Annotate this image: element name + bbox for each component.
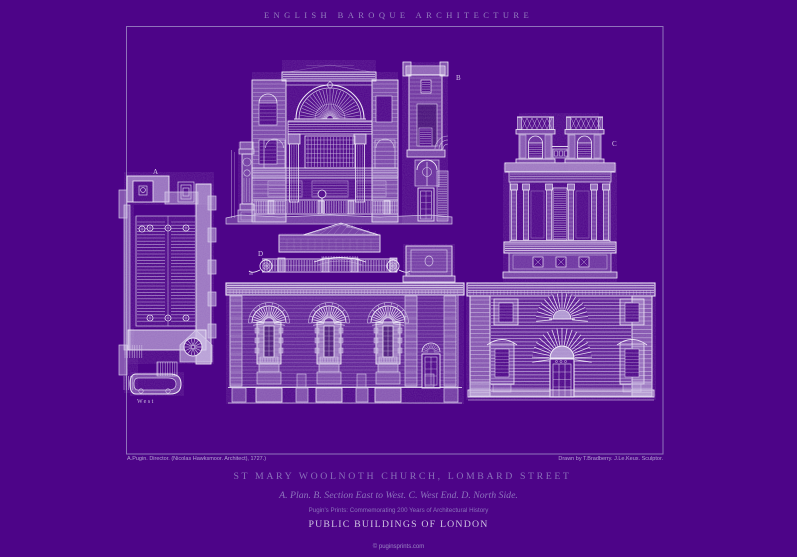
svg-text:West: West bbox=[137, 399, 155, 405]
svg-text:B: B bbox=[456, 74, 461, 82]
svg-text:C: C bbox=[612, 140, 617, 148]
svg-text:D: D bbox=[258, 250, 263, 258]
svg-text:32 ft: 32 ft bbox=[346, 224, 354, 229]
